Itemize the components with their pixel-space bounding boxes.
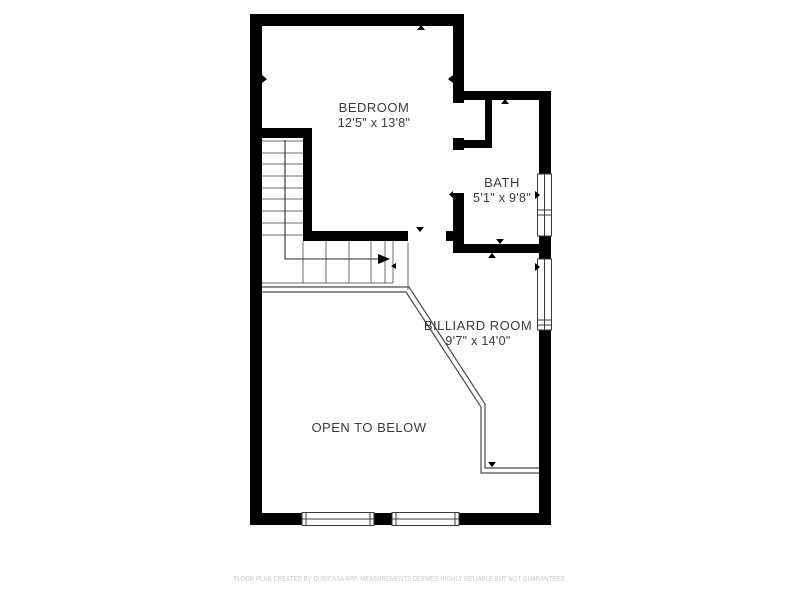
- walls: [250, 14, 551, 525]
- wall-segment-bath-bottom: [453, 244, 540, 253]
- open-to-below-railing: [262, 287, 539, 473]
- staircase: [262, 141, 408, 290]
- bath-label: BATH: [484, 175, 520, 190]
- marker-railing-corner: [488, 462, 496, 467]
- wall-segment-bottom-left: [250, 513, 302, 525]
- bedroom-dimensions: 12'5" x 13'8": [338, 116, 410, 130]
- floor-plan-page: BEDROOM 12'5" x 13'8" BATH 5'1" x 9'8" B…: [0, 0, 800, 600]
- window-bath: [538, 174, 552, 236]
- wall-segment-bedroom-right: [453, 14, 464, 103]
- wall-segment-bottom-right: [459, 513, 551, 525]
- stair-treads-upper: [262, 141, 303, 235]
- window-bottom-right: [392, 513, 459, 526]
- floor-plan-canvas: BEDROOM 12'5" x 13'8" BATH 5'1" x 9'8" B…: [0, 0, 800, 600]
- wall-segment-closet-bottom: [453, 140, 492, 148]
- wall-segment-door-stub: [446, 231, 455, 241]
- wall-segment-top: [250, 14, 464, 26]
- window-bottom-left: [302, 513, 374, 526]
- billiard-room-dimensions: 9'7" x 14'0": [445, 334, 510, 348]
- marker-bath-bottom-in: [496, 239, 504, 244]
- wall-segment-right-upper: [539, 91, 551, 174]
- bath-dimensions: 5'1" x 9'8": [473, 191, 531, 205]
- marker-bath-door: [449, 191, 453, 198]
- room-labels: BEDROOM 12'5" x 13'8" BATH 5'1" x 9'8" B…: [311, 100, 532, 435]
- wall-segment-bedroom-south: [303, 231, 408, 241]
- stair-arrowhead: [378, 254, 390, 264]
- wall-segment-right-lower: [539, 330, 551, 525]
- wall-segment-bath-top: [456, 91, 540, 100]
- window-billiard: [538, 259, 552, 330]
- wall-segment-right-mid: [539, 236, 551, 259]
- billiard-room-label: BILLIARD ROOM: [424, 318, 532, 333]
- open-to-below-label: OPEN TO BELOW: [311, 420, 426, 435]
- wall-segment-left: [250, 14, 262, 525]
- wall-segment-bottom-mid: [374, 513, 392, 525]
- wall-segment-bath-left-lower: [453, 193, 464, 250]
- marker-bath-bottom-out: [488, 253, 496, 258]
- marker-left-wall: [262, 75, 267, 83]
- wall-segment-stair-right: [303, 128, 312, 241]
- marker-bedroom-right: [448, 75, 453, 83]
- footer-disclaimer: FLOOR PLAN CREATED BY CUBICASA APP. MEAS…: [234, 574, 567, 583]
- marker-bedroom-door: [416, 227, 424, 232]
- bedroom-label: BEDROOM: [339, 100, 410, 115]
